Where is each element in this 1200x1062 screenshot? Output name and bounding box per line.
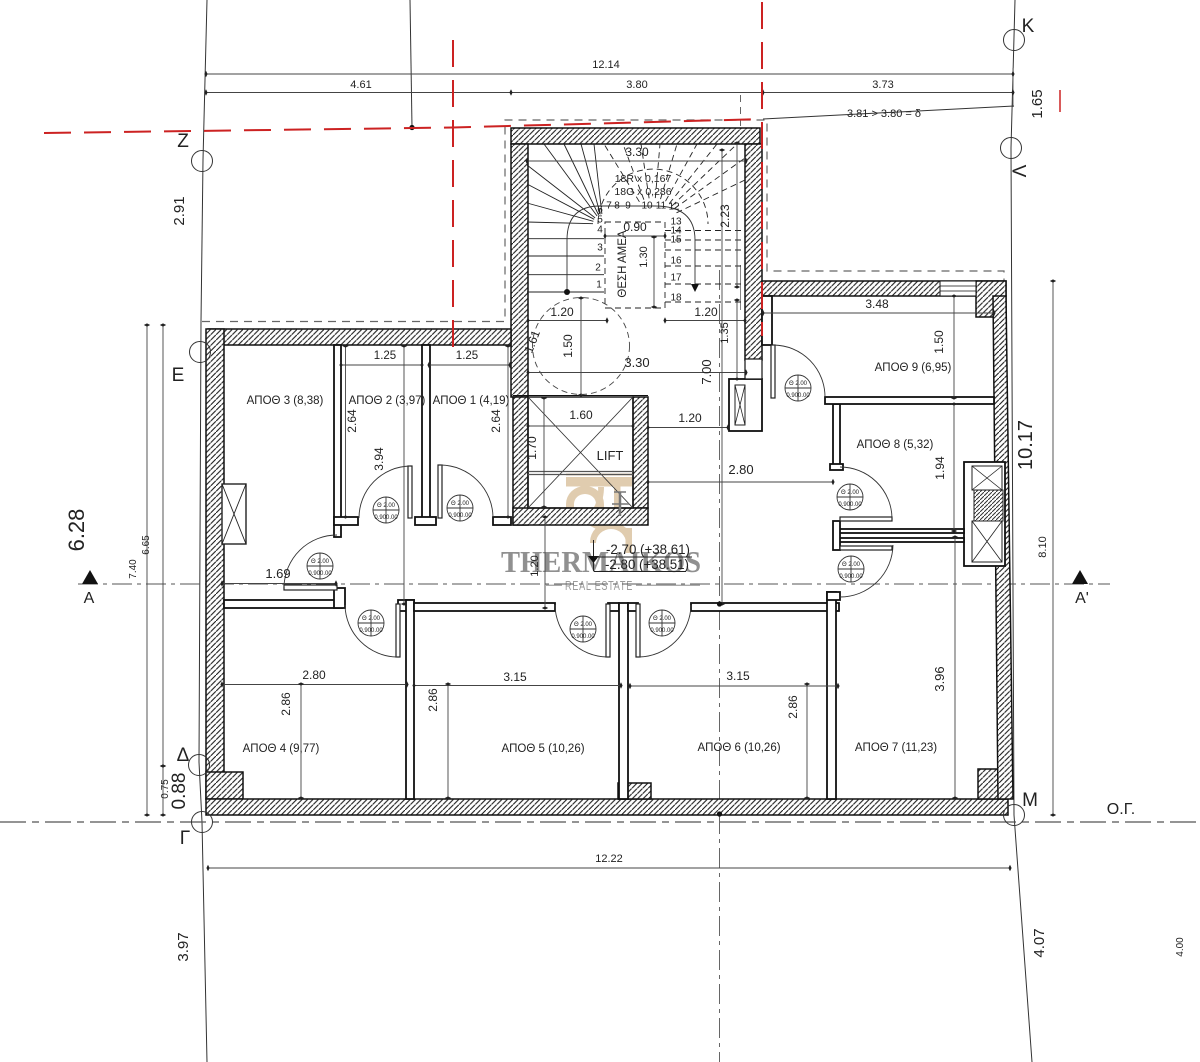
svg-text:12.14: 12.14 xyxy=(592,59,620,71)
svg-text:1.70: 1.70 xyxy=(525,436,539,460)
svg-text:4.61: 4.61 xyxy=(350,79,371,91)
svg-text:18R x 0,167: 18R x 0,167 xyxy=(615,173,672,185)
svg-text:Θ 2.00: Θ 2.00 xyxy=(842,562,861,568)
svg-text:2.64: 2.64 xyxy=(345,409,359,433)
svg-text:1.65: 1.65 xyxy=(1029,89,1046,118)
svg-text:Δ: Δ xyxy=(177,745,190,766)
svg-text:0.900.00: 0.900.00 xyxy=(359,628,383,634)
svg-text:1.25: 1.25 xyxy=(374,350,396,362)
svg-text:Α': Α' xyxy=(1075,590,1089,607)
svg-text:1.60: 1.60 xyxy=(569,408,593,422)
svg-text:E: E xyxy=(172,365,185,386)
svg-text:3.48: 3.48 xyxy=(865,297,889,311)
svg-text:2.91: 2.91 xyxy=(171,196,188,225)
svg-text:1.50: 1.50 xyxy=(561,334,575,358)
svg-text:7: 7 xyxy=(606,201,612,212)
svg-text:6: 6 xyxy=(597,205,603,216)
svg-text:4: 4 xyxy=(597,225,603,236)
svg-text:REAL ESTATE: REAL ESTATE xyxy=(565,578,633,593)
svg-text:Λ: Λ xyxy=(1010,164,1031,177)
svg-text:3.81 > 3.80 = δ: 3.81 > 3.80 = δ xyxy=(847,108,921,120)
svg-text:12.22: 12.22 xyxy=(595,853,623,865)
svg-text:7.40: 7.40 xyxy=(128,559,139,579)
svg-text:10.17: 10.17 xyxy=(1015,420,1037,470)
svg-text:ΑΠΟΘ 6 (10,26): ΑΠΟΘ 6 (10,26) xyxy=(697,742,780,754)
svg-text:8: 8 xyxy=(614,201,620,212)
svg-text:1.25: 1.25 xyxy=(456,350,478,362)
svg-text:1.20: 1.20 xyxy=(550,305,574,319)
svg-text:11: 11 xyxy=(656,201,667,212)
svg-text:2.86: 2.86 xyxy=(786,695,800,719)
svg-text:1.50: 1.50 xyxy=(932,330,946,354)
svg-text:0.900.00: 0.900.00 xyxy=(786,393,810,399)
svg-text:6.65: 6.65 xyxy=(141,535,152,555)
svg-text:3.73: 3.73 xyxy=(872,79,893,91)
svg-text:1.69: 1.69 xyxy=(265,566,290,581)
svg-text:2: 2 xyxy=(595,263,601,274)
svg-text:Ο.Γ.: Ο.Γ. xyxy=(1107,801,1135,818)
svg-text:3.97: 3.97 xyxy=(175,932,192,961)
svg-text:18G x 0,286: 18G x 0,286 xyxy=(614,186,671,198)
svg-text:16: 16 xyxy=(670,256,682,267)
svg-text:7.00: 7.00 xyxy=(699,359,714,384)
svg-text:1.35: 1.35 xyxy=(719,322,731,343)
svg-text:3.15: 3.15 xyxy=(503,670,527,684)
svg-text:ΑΠΟΘ 2 (3,97): ΑΠΟΘ 2 (3,97) xyxy=(349,395,426,407)
svg-text:12: 12 xyxy=(668,202,680,213)
svg-text:1.30: 1.30 xyxy=(638,246,650,267)
svg-text:ΑΠΟΘ 9 (6,95): ΑΠΟΘ 9 (6,95) xyxy=(875,362,952,374)
svg-text:0.900.00: 0.900.00 xyxy=(308,571,332,577)
svg-text:Θ 2.00: Θ 2.00 xyxy=(789,381,808,387)
svg-text:Θ 2.00: Θ 2.00 xyxy=(841,490,860,496)
svg-text:Θ 2.00: Θ 2.00 xyxy=(377,503,396,509)
svg-text:9: 9 xyxy=(625,201,631,212)
svg-text:Θ 2.00: Θ 2.00 xyxy=(451,501,470,507)
svg-text:2.64: 2.64 xyxy=(489,409,503,433)
svg-text:2.23: 2.23 xyxy=(718,204,732,228)
svg-text:17: 17 xyxy=(670,273,682,284)
svg-text:3.30: 3.30 xyxy=(625,145,649,159)
svg-text:4.00: 4.00 xyxy=(1175,937,1186,957)
svg-text:1.20: 1.20 xyxy=(678,411,702,425)
svg-text:ΑΠΟΘ 5 (10,26): ΑΠΟΘ 5 (10,26) xyxy=(501,743,584,755)
svg-text:ΘΕΣΗ ΑΜΕΑ: ΘΕΣΗ ΑΜΕΑ xyxy=(617,230,629,298)
svg-text:3.80: 3.80 xyxy=(626,79,647,91)
svg-text:1.94: 1.94 xyxy=(933,456,947,480)
svg-text:3: 3 xyxy=(597,243,603,254)
svg-text:3.94: 3.94 xyxy=(372,447,386,471)
svg-text:0.900.00: 0.900.00 xyxy=(650,628,674,634)
svg-text:Z: Z xyxy=(177,131,189,152)
svg-text:Α: Α xyxy=(84,590,95,607)
svg-text:0.900.00: 0.900.00 xyxy=(374,515,398,521)
svg-text:15: 15 xyxy=(670,235,682,246)
svg-text:0.900.00: 0.900.00 xyxy=(839,574,863,580)
svg-text:18: 18 xyxy=(670,293,682,304)
svg-text:0.900.00: 0.900.00 xyxy=(571,634,595,640)
svg-text:1.20: 1.20 xyxy=(529,555,541,576)
svg-text:ΑΠΟΘ 7 (11,23): ΑΠΟΘ 7 (11,23) xyxy=(855,742,937,754)
svg-text:3.15: 3.15 xyxy=(726,669,750,683)
svg-text:ΑΠΟΘ 4 (9,77): ΑΠΟΘ 4 (9,77) xyxy=(243,743,320,755)
svg-text:1.20: 1.20 xyxy=(694,305,718,319)
svg-text:ΑΠΟΘ 8 (5,32): ΑΠΟΘ 8 (5,32) xyxy=(857,439,934,451)
svg-text:Γ: Γ xyxy=(180,828,190,849)
svg-text:Θ 2.00: Θ 2.00 xyxy=(574,622,593,628)
svg-text:-2.70 (+38.61): -2.70 (+38.61) xyxy=(606,542,690,557)
svg-text:2.86: 2.86 xyxy=(279,692,293,716)
svg-text:5: 5 xyxy=(597,215,603,226)
svg-text:4.07: 4.07 xyxy=(1031,928,1048,957)
svg-text:2.80: 2.80 xyxy=(302,668,326,682)
svg-text:Θ 2.00: Θ 2.00 xyxy=(653,616,672,622)
svg-text:0.88: 0.88 xyxy=(169,773,190,810)
svg-text:2.86: 2.86 xyxy=(426,688,440,712)
svg-text:K: K xyxy=(1022,16,1035,37)
svg-text:8.10: 8.10 xyxy=(1037,536,1049,557)
svg-text:ΑΠΟΘ 3 (8,38): ΑΠΟΘ 3 (8,38) xyxy=(247,395,324,407)
svg-text:ΑΠΟΘ 1 (4,19): ΑΠΟΘ 1 (4,19) xyxy=(433,395,510,407)
svg-text:LIFT: LIFT xyxy=(597,448,624,463)
svg-text:0.900.00: 0.900.00 xyxy=(838,502,862,508)
svg-text:M: M xyxy=(1022,790,1038,811)
svg-text:0.900.00: 0.900.00 xyxy=(448,513,472,519)
svg-text:6.28: 6.28 xyxy=(64,509,89,552)
svg-text:10: 10 xyxy=(641,201,653,212)
svg-text:2.80: 2.80 xyxy=(728,462,753,477)
svg-text:3.96: 3.96 xyxy=(932,666,947,691)
svg-text:-2.80 (+38.51): -2.80 (+38.51) xyxy=(605,557,689,572)
svg-text:1: 1 xyxy=(596,280,602,291)
svg-text:Θ 2.00: Θ 2.00 xyxy=(362,616,381,622)
svg-text:0.90: 0.90 xyxy=(623,220,647,234)
svg-text:Θ 2.00: Θ 2.00 xyxy=(311,559,330,565)
